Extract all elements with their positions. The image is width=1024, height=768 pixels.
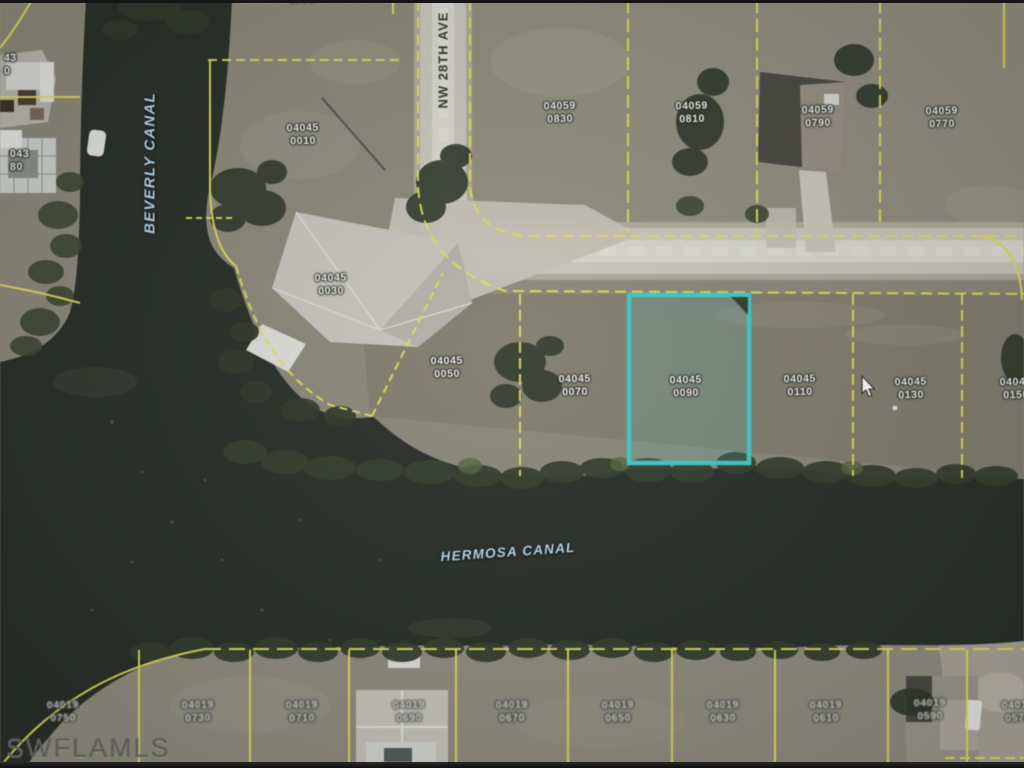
parcel-label: 040190730: [182, 699, 215, 725]
parcel-label: 040190630: [707, 699, 740, 725]
parcel-label: 040190650: [602, 699, 635, 725]
parcel-label: 040450070: [559, 373, 592, 399]
parcel-label: 040590830: [544, 100, 577, 126]
parcel-label: 040450010: [287, 122, 320, 148]
parcel-label: 040190750: [47, 699, 80, 725]
parcel-label: 040190610: [810, 699, 843, 725]
parcel-label: 040450050: [431, 355, 464, 381]
parcel-label: 040590810: [676, 100, 709, 126]
parcel-label: 040450110: [784, 373, 817, 399]
parcel-label: 040190690: [393, 699, 426, 725]
beverly-canal-label: BEVERLY CANAL: [142, 92, 159, 234]
parcel-label: 04380: [10, 148, 30, 173]
parcel-label: 040590790: [802, 104, 835, 130]
street-name-label: NW 28TH AVE: [436, 12, 451, 109]
parcel-label: 040450030: [315, 272, 348, 298]
parcel-label: 040190670: [496, 699, 529, 725]
parcel-label: 040590770: [926, 105, 959, 131]
parcel-label: 040450130: [895, 376, 928, 402]
photo-edge-bottom: [0, 762, 1024, 768]
parcel-label: 040190590: [914, 697, 947, 723]
parcel-label: 430: [4, 52, 17, 77]
parcel-label: 040190710: [286, 699, 319, 725]
mls-watermark: SWFLAMLS: [6, 733, 171, 764]
aerial-photo: 0730040450010040450030040450050040450070…: [0, 0, 1024, 768]
parcel-label: 040450090: [670, 374, 703, 400]
parcel-label: 040190570: [1002, 699, 1024, 725]
photo-edge-top: [0, 0, 1024, 3]
aerial-parcel-map[interactable]: 0730040450010040450030040450050040450070…: [0, 0, 1024, 768]
parcel-label: 040450150: [1000, 376, 1024, 402]
